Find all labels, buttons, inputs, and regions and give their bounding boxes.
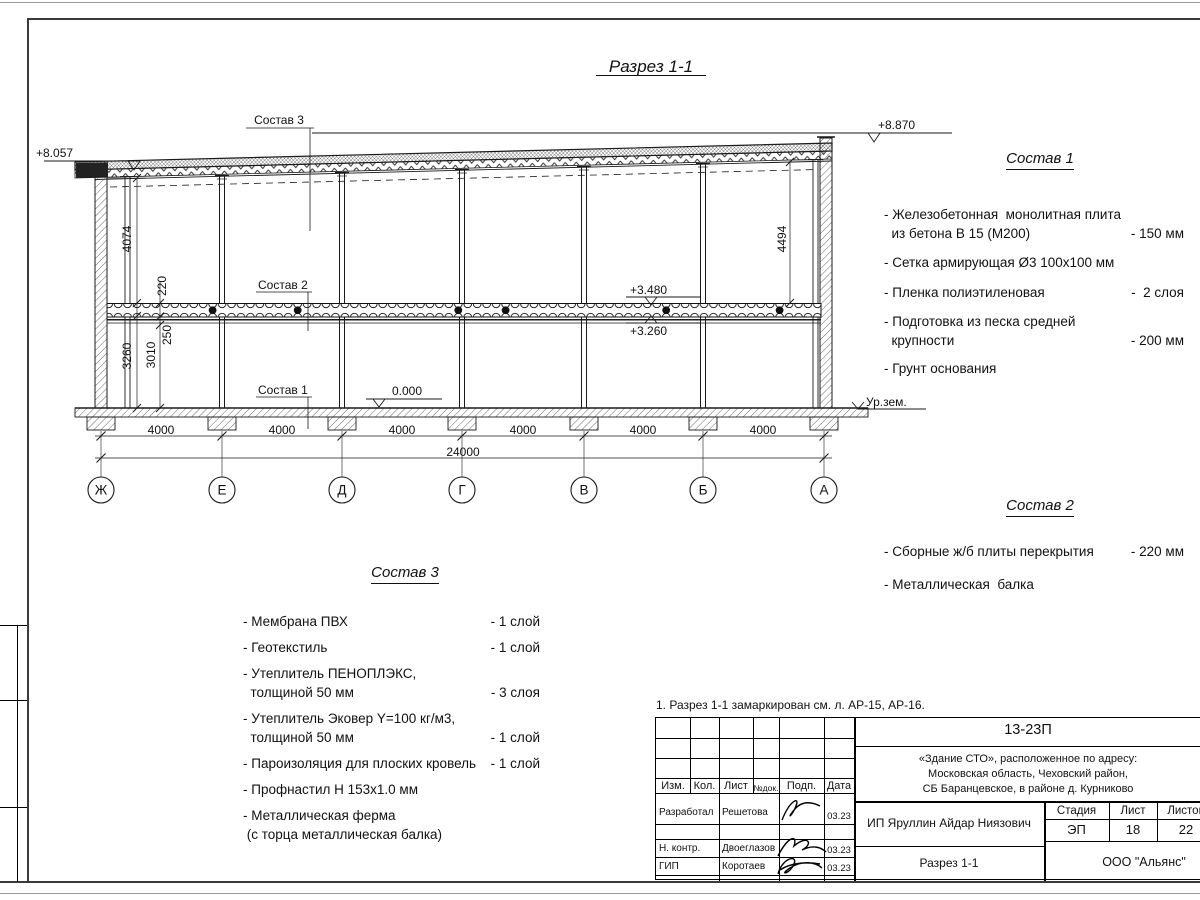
signature <box>778 794 824 826</box>
tb-sheets-label: Листов <box>1157 805 1200 818</box>
list-item: - Сборные ж/б плиты перекрытия- 220 мм <box>884 542 1184 561</box>
drawing-sheet: { "drawing": { "title": "Разрез 1-1", "e… <box>0 0 1200 900</box>
grid-label: А <box>819 483 828 498</box>
dim-total: 24000 <box>438 445 488 459</box>
tb-sheet-label: Лист <box>1109 805 1157 818</box>
elevation-roof-right: +8.870 <box>878 118 915 132</box>
roof-assembly <box>75 143 832 187</box>
callout-sostav2: Состав 2 <box>258 278 308 292</box>
tb-col-izm: Изм. <box>656 780 690 793</box>
list-item: - Металлическая ферма (с торца металличе… <box>243 806 540 844</box>
title-block: Изм. Кол. Лист №док. Подп. Дата Разработ… <box>655 717 1200 880</box>
sostav3-heading: Состав 3 <box>371 564 439 584</box>
dim-lower-height-a: 3260 <box>120 331 134 381</box>
tb-name: Двоеглазов <box>722 842 775 855</box>
elevation-roof-left: +8.057 <box>36 146 73 160</box>
wall-columns <box>120 160 823 409</box>
sostav3-panel: - Мембрана ПВХ- 1 слой - Геотекстиль- 1 … <box>243 612 540 844</box>
dim-bay: 4000 <box>503 423 543 437</box>
grid-label: Ж <box>95 483 108 498</box>
tb-stage-value: ЭП <box>1044 823 1109 836</box>
list-item: - Железобетонная монолитная плита из бет… <box>884 205 1184 243</box>
grid-label: В <box>579 483 588 498</box>
grid-label: Д <box>337 483 346 498</box>
callout-sostav3: Состав 3 <box>246 113 312 127</box>
tb-date: 03.23 <box>826 862 852 875</box>
dim-bay: 4000 <box>262 423 302 437</box>
grid-label: Б <box>699 483 708 498</box>
tb-name: Коротаев <box>722 860 765 873</box>
dim-beam-height: 250 <box>160 310 174 360</box>
list-item: - Утеплитель Эковер Y=100 кг/м3, толщино… <box>243 709 540 747</box>
grid-label: Е <box>217 483 226 498</box>
grid-bubbles: Ж Е Д Г В Б А <box>88 477 837 503</box>
tb-role: Разработал <box>659 806 713 819</box>
list-item: - Утеплитель ПЕНОПЛЭКС, толщиной 50 мм- … <box>243 664 540 702</box>
callout-sostav1: Состав 1 <box>258 383 308 397</box>
list-item: - Профнастил Н 153х1.0 мм <box>243 780 540 799</box>
list-item: - Сетка армирующая Ø3 100х100 мм <box>884 253 1184 272</box>
tb-name: Решетова <box>722 806 768 819</box>
sostav1-heading: Состав 1 <box>1006 150 1074 170</box>
elevation-floor: 0.000 <box>392 384 422 398</box>
dim-upper-height: 4074 <box>120 214 134 264</box>
tb-role: ГИП <box>659 860 679 873</box>
dim-upper-height-right: 4494 <box>775 214 789 264</box>
tb-date: 03.23 <box>826 844 852 857</box>
tb-doc-code: 13-23П <box>854 724 1200 737</box>
tb-client: ИП Яруллин Айдар Ниязович <box>854 817 1044 830</box>
elevation-slab-bottom: +3.260 <box>630 324 667 338</box>
tb-col-ndok: №док. <box>753 782 779 795</box>
dim-bay: 4000 <box>141 423 181 437</box>
sheet-note: 1. Разрез 1-1 замаркирован см. л. АР-15,… <box>656 698 925 712</box>
tb-sheet-value: 18 <box>1109 823 1157 836</box>
sostav2-panel: - Сборные ж/б плиты перекрытия- 220 мм -… <box>884 542 1184 594</box>
dim-lower-height-b: 3010 <box>144 330 158 380</box>
tb-role: Н. контр. <box>659 842 700 855</box>
list-item: - Грунт основания <box>884 359 1184 378</box>
dim-slab-thickness: 220 <box>155 261 169 311</box>
tb-sheets-value: 22 <box>1157 823 1200 836</box>
list-item: - Мембрана ПВХ- 1 слой <box>243 612 540 631</box>
sostav2-heading: Состав 2 <box>1006 497 1074 517</box>
tb-col-podp: Подп. <box>779 780 824 793</box>
tb-col-kol: Кол. <box>690 780 719 793</box>
tb-col-list: Лист <box>719 780 753 793</box>
sostav1-panel: - Железобетонная монолитная плита из бет… <box>884 205 1184 378</box>
tb-col-data: Дата <box>824 780 854 793</box>
dim-bay: 4000 <box>623 423 663 437</box>
ground-level-label: Ур.зем. <box>866 395 907 409</box>
list-item: - Пленка полиэтиленовая- 2 слоя <box>884 283 1184 302</box>
dim-bay: 4000 <box>743 423 783 437</box>
list-item: - Подготовка из песка средней крупности-… <box>884 312 1184 350</box>
list-item: - Металлическая балка <box>884 575 1184 594</box>
signature <box>772 852 826 882</box>
tb-sheet-title: Разрез 1-1 <box>854 857 1044 870</box>
list-item: - Геотекстиль- 1 слой <box>243 638 540 657</box>
tb-date: 03.23 <box>826 810 852 823</box>
tb-company: ООО "Альянс" <box>1044 856 1200 869</box>
dim-bay: 4000 <box>382 423 422 437</box>
tb-project: «Здание СТО», расположенное по адресу: М… <box>854 752 1200 797</box>
elevation-slab-top: +3.480 <box>630 283 667 297</box>
tb-stage-label: Стадия <box>1044 805 1109 818</box>
drawing-title: Разрез 1-1 <box>596 60 706 76</box>
grid-label: Г <box>458 483 466 498</box>
list-item: - Пароизоляция для плоских кровель- 1 сл… <box>243 754 540 773</box>
floor-slab <box>107 304 821 324</box>
